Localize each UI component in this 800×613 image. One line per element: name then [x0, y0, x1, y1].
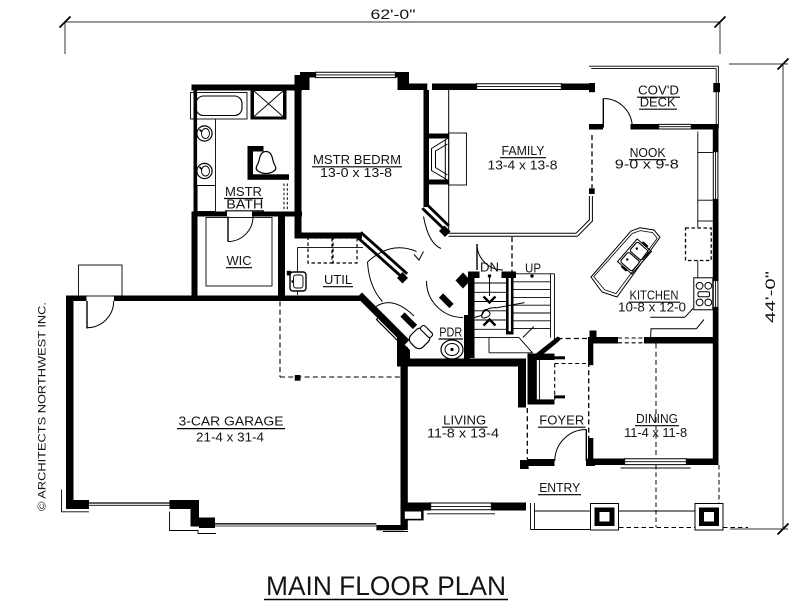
svg-text:MAIN FLOOR PLAN: MAIN FLOOR PLAN — [266, 571, 506, 601]
svg-text:13-4 x 13-8: 13-4 x 13-8 — [488, 158, 558, 173]
svg-text:13-0 x 13-8: 13-0 x 13-8 — [320, 165, 392, 180]
svg-text:21-4 x 31-4: 21-4 x 31-4 — [196, 430, 264, 445]
svg-text:UTIL: UTIL — [324, 272, 352, 287]
svg-text:DINING: DINING — [636, 411, 678, 426]
svg-text:62'-0": 62'-0" — [371, 7, 416, 22]
svg-text:3-CAR GARAGE: 3-CAR GARAGE — [179, 414, 284, 429]
svg-text:ENTRY: ENTRY — [539, 480, 580, 495]
svg-text:10-8 x 12-0: 10-8 x 12-0 — [618, 300, 686, 315]
svg-text:UP: UP — [525, 261, 541, 276]
svg-text:DECK: DECK — [640, 95, 676, 110]
svg-text:9-0 x 9-8: 9-0 x 9-8 — [615, 157, 679, 172]
svg-text:11-4 x 11-8: 11-4 x 11-8 — [624, 425, 687, 440]
svg-text:DN: DN — [480, 260, 499, 275]
svg-text:11-8 x 13-4: 11-8 x 13-4 — [427, 426, 499, 441]
svg-text:BATH: BATH — [226, 197, 263, 212]
svg-text:WIC: WIC — [227, 253, 252, 268]
svg-text:FAMILY: FAMILY — [502, 143, 545, 158]
svg-text:© ARCHITECTS NORTHWEST INC.: © ARCHITECTS NORTHWEST INC. — [37, 302, 49, 511]
svg-text:44'-0": 44'-0" — [763, 271, 778, 323]
svg-text:PDR: PDR — [439, 325, 462, 340]
svg-text:FOYER: FOYER — [539, 413, 584, 428]
